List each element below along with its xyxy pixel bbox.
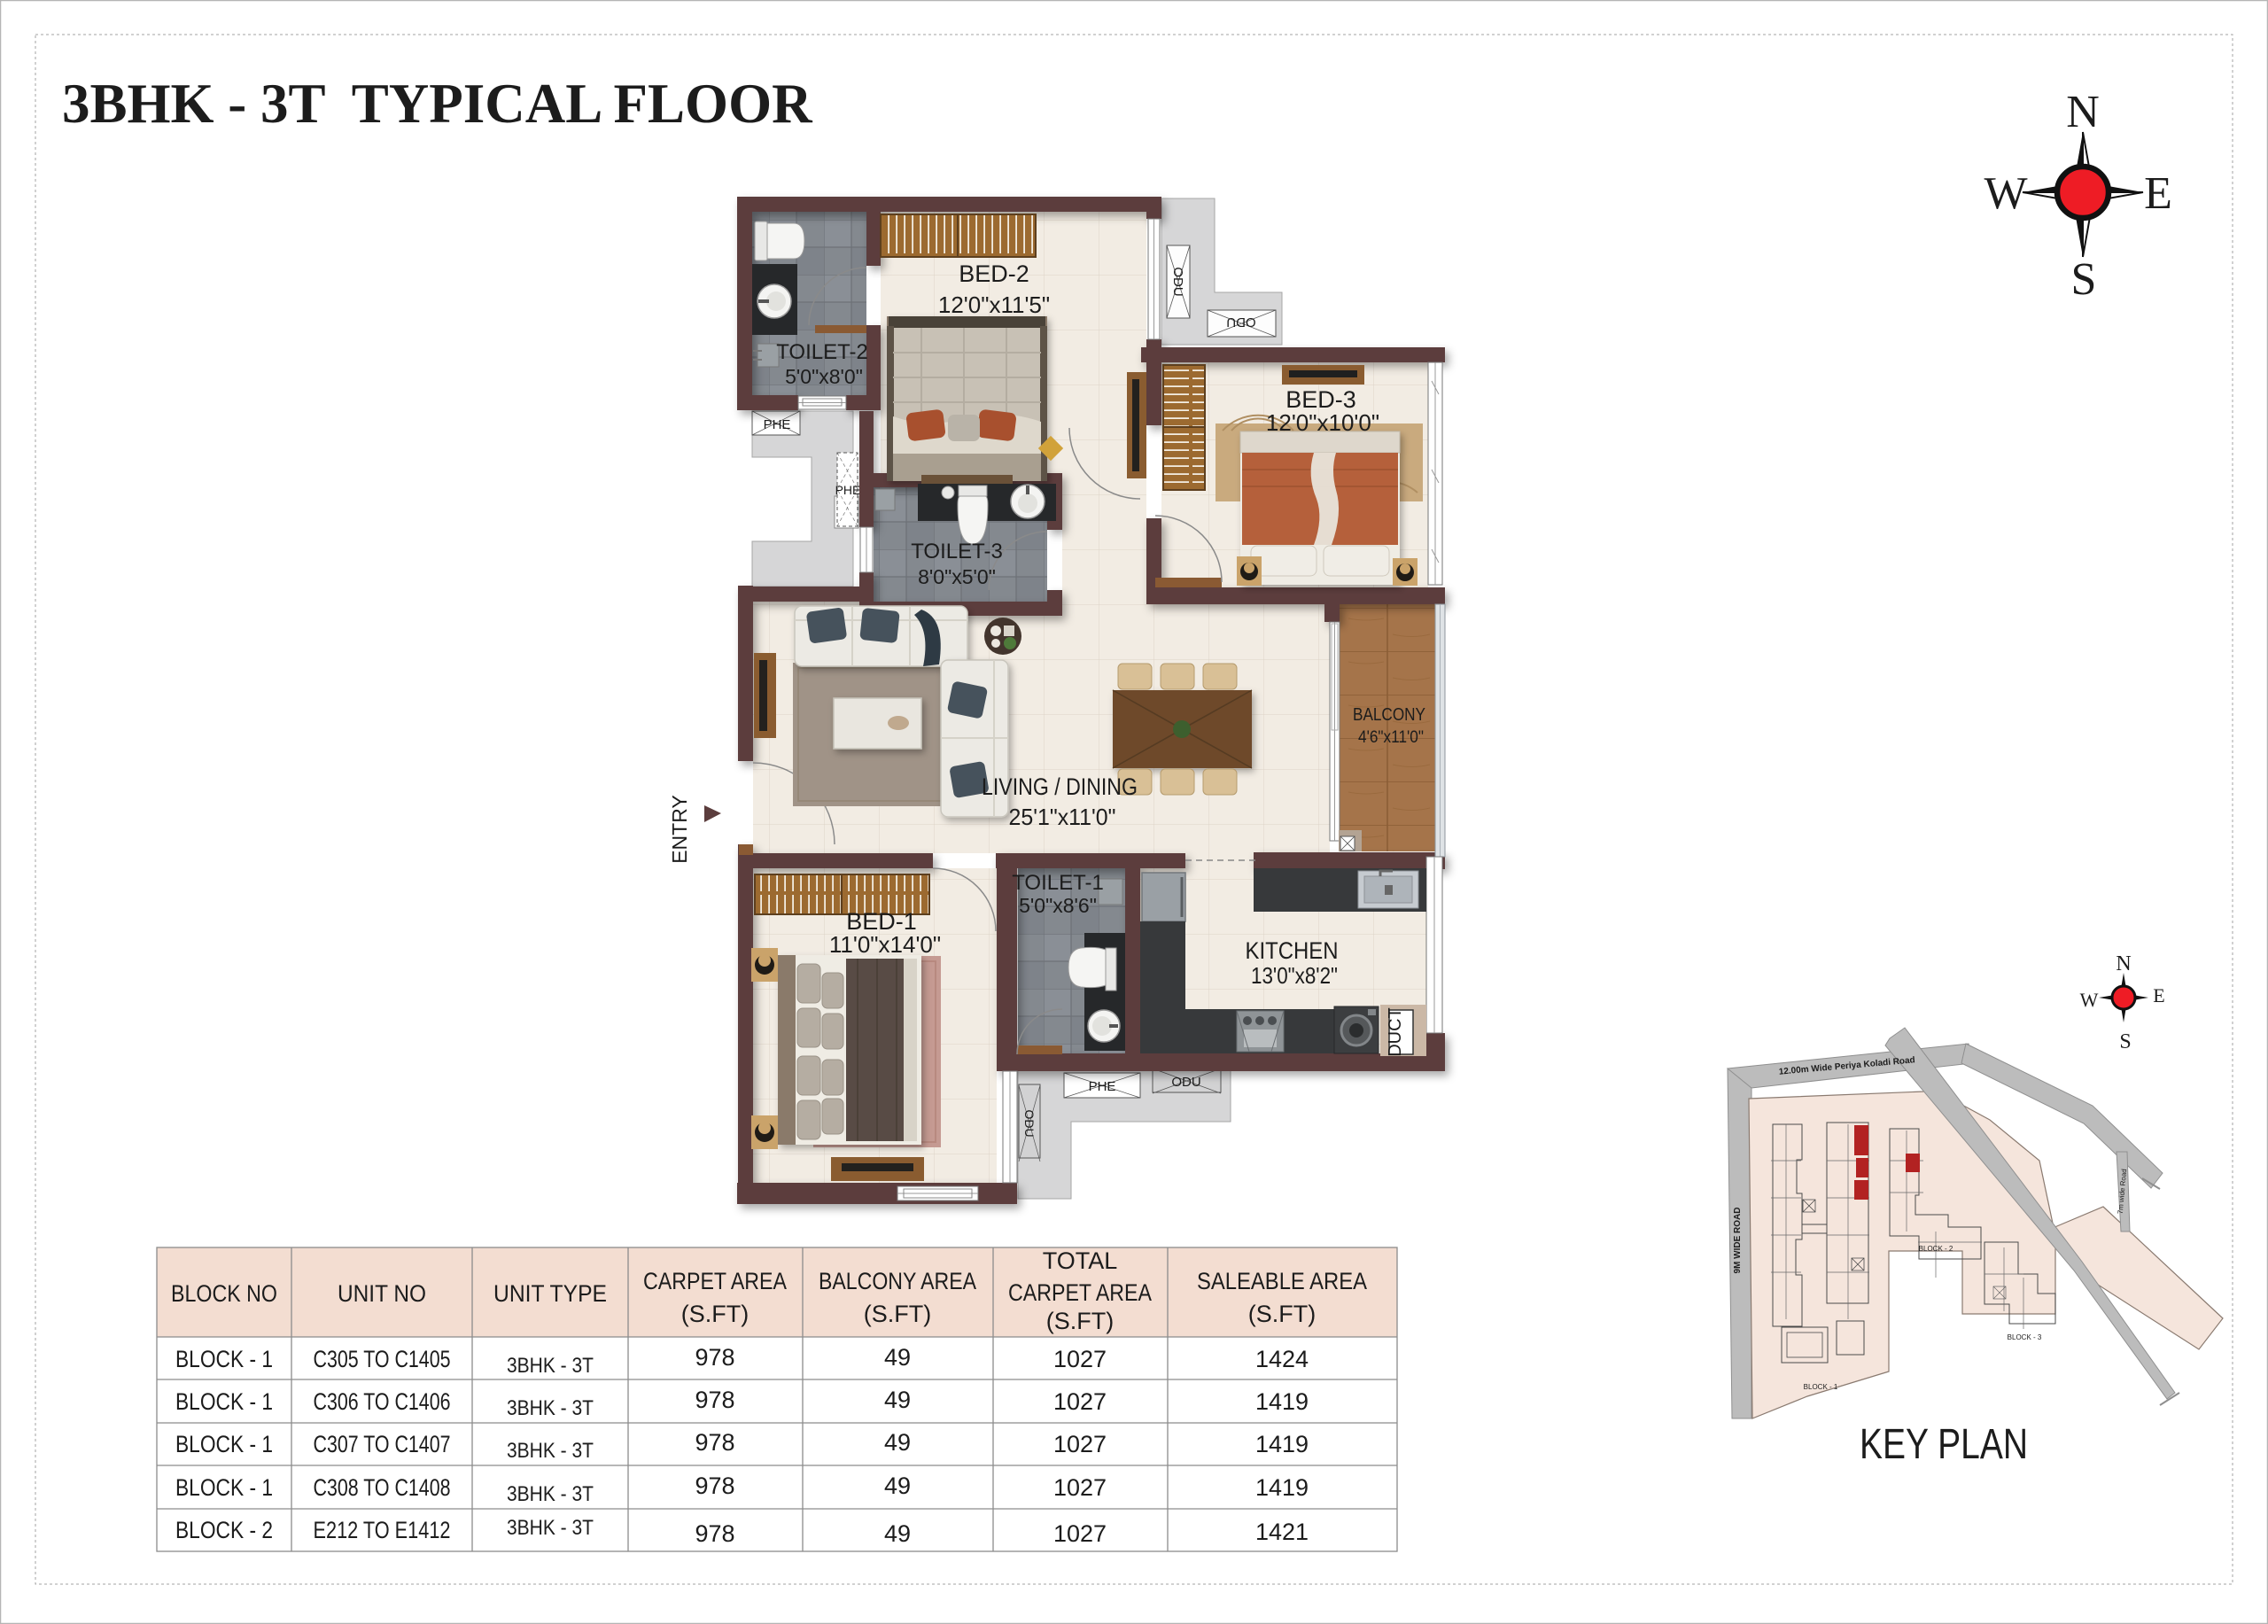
svg-text:C306 TO C1406: C306 TO C1406 [314, 1388, 451, 1415]
svg-text:BED-2: BED-2 [959, 260, 1029, 287]
svg-text:4'6"x11'0": 4'6"x11'0" [1358, 728, 1424, 747]
svg-text:BLOCK - 1: BLOCK - 1 [175, 1474, 273, 1501]
svg-text:SALEABLE AREA: SALEABLE AREA [1197, 1268, 1367, 1294]
svg-text:3BHK - 3T: 3BHK - 3T [507, 1516, 594, 1540]
svg-text:49: 49 [884, 1387, 911, 1413]
svg-text:11'0"x14'0": 11'0"x14'0" [829, 931, 941, 958]
svg-text:ODU: ODU [1226, 315, 1255, 330]
svg-text:(S.FT): (S.FT) [864, 1301, 931, 1327]
svg-text:KITCHEN: KITCHEN [1246, 937, 1339, 964]
svg-text:978: 978 [695, 1429, 734, 1456]
svg-text:TOILET-1: TOILET-1 [1012, 871, 1104, 895]
svg-text:C308 TO C1408: C308 TO C1408 [314, 1474, 451, 1501]
svg-text:BALCONY: BALCONY [1353, 705, 1425, 725]
svg-text:BLOCK - 2: BLOCK - 2 [1919, 1245, 1953, 1253]
svg-text:E212 TO E1412: E212 TO E1412 [314, 1517, 451, 1543]
svg-text:KEY PLAN: KEY PLAN [1860, 1421, 2028, 1468]
svg-text:5'0"x8'0": 5'0"x8'0" [785, 365, 863, 388]
svg-text:12'0"x10'0": 12'0"x10'0" [1266, 409, 1379, 436]
svg-text:12'0"x11'5": 12'0"x11'5" [938, 291, 1050, 318]
svg-text:1027: 1027 [1053, 1520, 1107, 1547]
svg-text:978: 978 [695, 1520, 734, 1547]
svg-text:BLOCK - 3: BLOCK - 3 [2008, 1333, 2042, 1341]
svg-text:1419: 1419 [1255, 1388, 1309, 1415]
svg-text:1027: 1027 [1053, 1346, 1107, 1372]
svg-text:CARPET AREA: CARPET AREA [643, 1268, 787, 1294]
svg-text:1027: 1027 [1053, 1431, 1107, 1457]
svg-text:N: N [2066, 87, 2100, 137]
svg-text:PHE: PHE [835, 483, 861, 497]
svg-text:S: S [2119, 1030, 2131, 1053]
svg-text:E: E [2144, 168, 2172, 219]
svg-text:(S.FT): (S.FT) [1248, 1301, 1316, 1327]
svg-text:BLOCK - 1: BLOCK - 1 [175, 1346, 273, 1372]
svg-text:3BHK - 3T: 3BHK - 3T [507, 1396, 594, 1420]
svg-text:ODU: ODU [1171, 1075, 1200, 1090]
svg-text:BALCONY AREA: BALCONY AREA [819, 1268, 976, 1294]
svg-text:E: E [2153, 984, 2164, 1006]
svg-text:(S.FT): (S.FT) [681, 1301, 749, 1327]
svg-text:5'0"x8'6": 5'0"x8'6" [1019, 894, 1097, 917]
svg-text:1027: 1027 [1053, 1474, 1107, 1501]
svg-text:CARPET AREA: CARPET AREA [1008, 1279, 1152, 1306]
svg-text:BLOCK - 1: BLOCK - 1 [175, 1431, 273, 1457]
svg-text:1419: 1419 [1255, 1474, 1309, 1501]
svg-text:DUCT: DUCT [1386, 1007, 1405, 1057]
svg-text:ODU: ODU [1170, 267, 1185, 296]
svg-text:978: 978 [695, 1387, 734, 1413]
svg-text:8'0"x5'0": 8'0"x5'0" [918, 565, 996, 588]
svg-text:BLOCK - 1: BLOCK - 1 [1804, 1383, 1838, 1391]
svg-text:ENTRY: ENTRY [668, 795, 691, 864]
svg-text:TOILET-3: TOILET-3 [911, 540, 1003, 563]
svg-text:LIVING / DINING: LIVING / DINING [982, 773, 1138, 800]
svg-text:9M WIDE ROAD: 9M WIDE ROAD [1733, 1208, 1743, 1274]
svg-text:W: W [1984, 168, 2027, 219]
svg-text:ODU: ODU [1022, 1109, 1037, 1137]
svg-text:49: 49 [884, 1472, 911, 1499]
svg-text:978: 978 [695, 1472, 734, 1499]
svg-text:C307 TO C1407: C307 TO C1407 [314, 1431, 451, 1457]
svg-text:1421: 1421 [1255, 1519, 1309, 1545]
svg-text:978: 978 [695, 1344, 734, 1371]
svg-text:TOTAL: TOTAL [1043, 1247, 1118, 1274]
svg-text:1027: 1027 [1053, 1388, 1107, 1415]
svg-text:3BHK - 3T: 3BHK - 3T [507, 1439, 594, 1463]
svg-text:(S.FT): (S.FT) [1046, 1308, 1114, 1334]
svg-text:TOILET-2: TOILET-2 [776, 340, 868, 364]
svg-text:C305 TO C1405: C305 TO C1405 [314, 1346, 451, 1372]
svg-text:3BHK - 3T TYPICAL FLOOR: 3BHK - 3T TYPICAL FLOOR [62, 73, 813, 135]
svg-text:UNIT TYPE: UNIT TYPE [493, 1280, 607, 1307]
svg-text:S: S [2071, 254, 2097, 305]
svg-text:49: 49 [884, 1520, 911, 1547]
svg-text:BLOCK NO: BLOCK NO [171, 1280, 277, 1307]
svg-text:49: 49 [884, 1344, 911, 1371]
svg-text:PHE: PHE [764, 417, 791, 432]
svg-text:N: N [2116, 952, 2131, 975]
svg-text:UNIT NO: UNIT NO [338, 1280, 426, 1307]
svg-text:25'1"x11'0": 25'1"x11'0" [1009, 804, 1116, 830]
svg-text:PHE: PHE [1089, 1079, 1116, 1094]
svg-text:BLOCK - 1: BLOCK - 1 [175, 1388, 273, 1415]
svg-text:BLOCK - 2: BLOCK - 2 [175, 1517, 273, 1543]
svg-text:3BHK - 3T: 3BHK - 3T [507, 1354, 594, 1378]
svg-text:3BHK - 3T: 3BHK - 3T [507, 1482, 594, 1506]
svg-text:13'0"x8'2": 13'0"x8'2" [1251, 962, 1338, 989]
svg-text:W: W [2080, 989, 2099, 1011]
svg-text:49: 49 [884, 1429, 911, 1456]
svg-text:1424: 1424 [1255, 1346, 1309, 1372]
svg-text:1419: 1419 [1255, 1431, 1309, 1457]
